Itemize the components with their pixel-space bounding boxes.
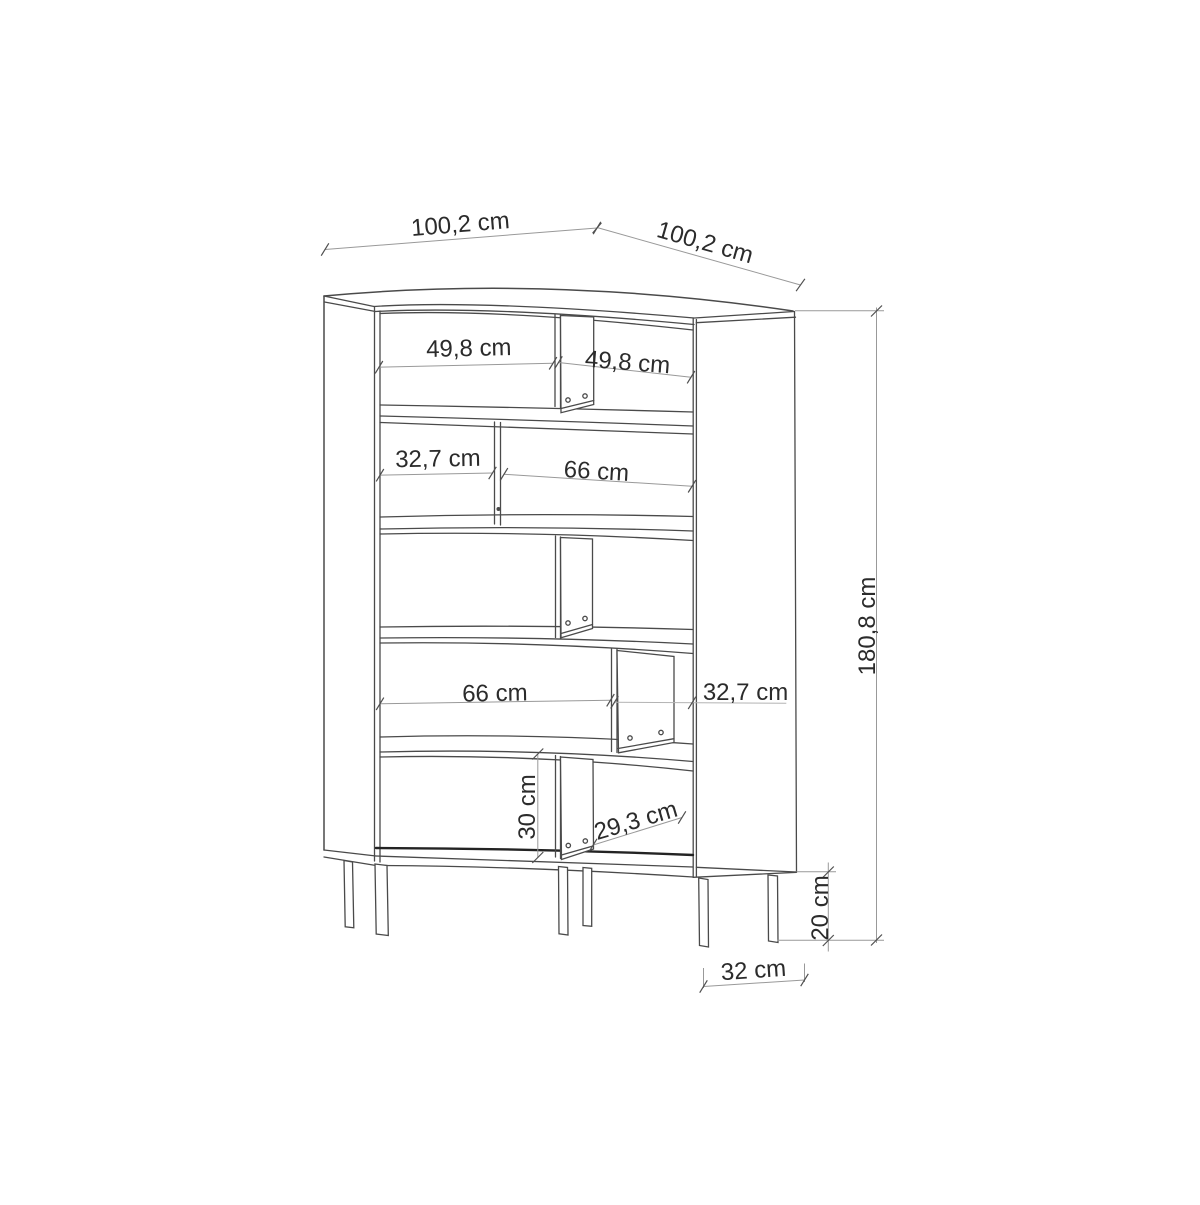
svg-text:66 cm: 66 cm (462, 679, 528, 707)
svg-text:32,7 cm: 32,7 cm (395, 445, 481, 473)
svg-text:20 cm: 20 cm (807, 875, 834, 940)
svg-text:30 cm: 30 cm (514, 774, 541, 839)
svg-text:32 cm: 32 cm (720, 955, 787, 986)
svg-text:32,7 cm: 32,7 cm (703, 679, 788, 706)
svg-text:66 cm: 66 cm (563, 456, 630, 487)
svg-text:49,8 cm: 49,8 cm (426, 334, 512, 363)
svg-text:180,8 cm: 180,8 cm (854, 577, 881, 676)
